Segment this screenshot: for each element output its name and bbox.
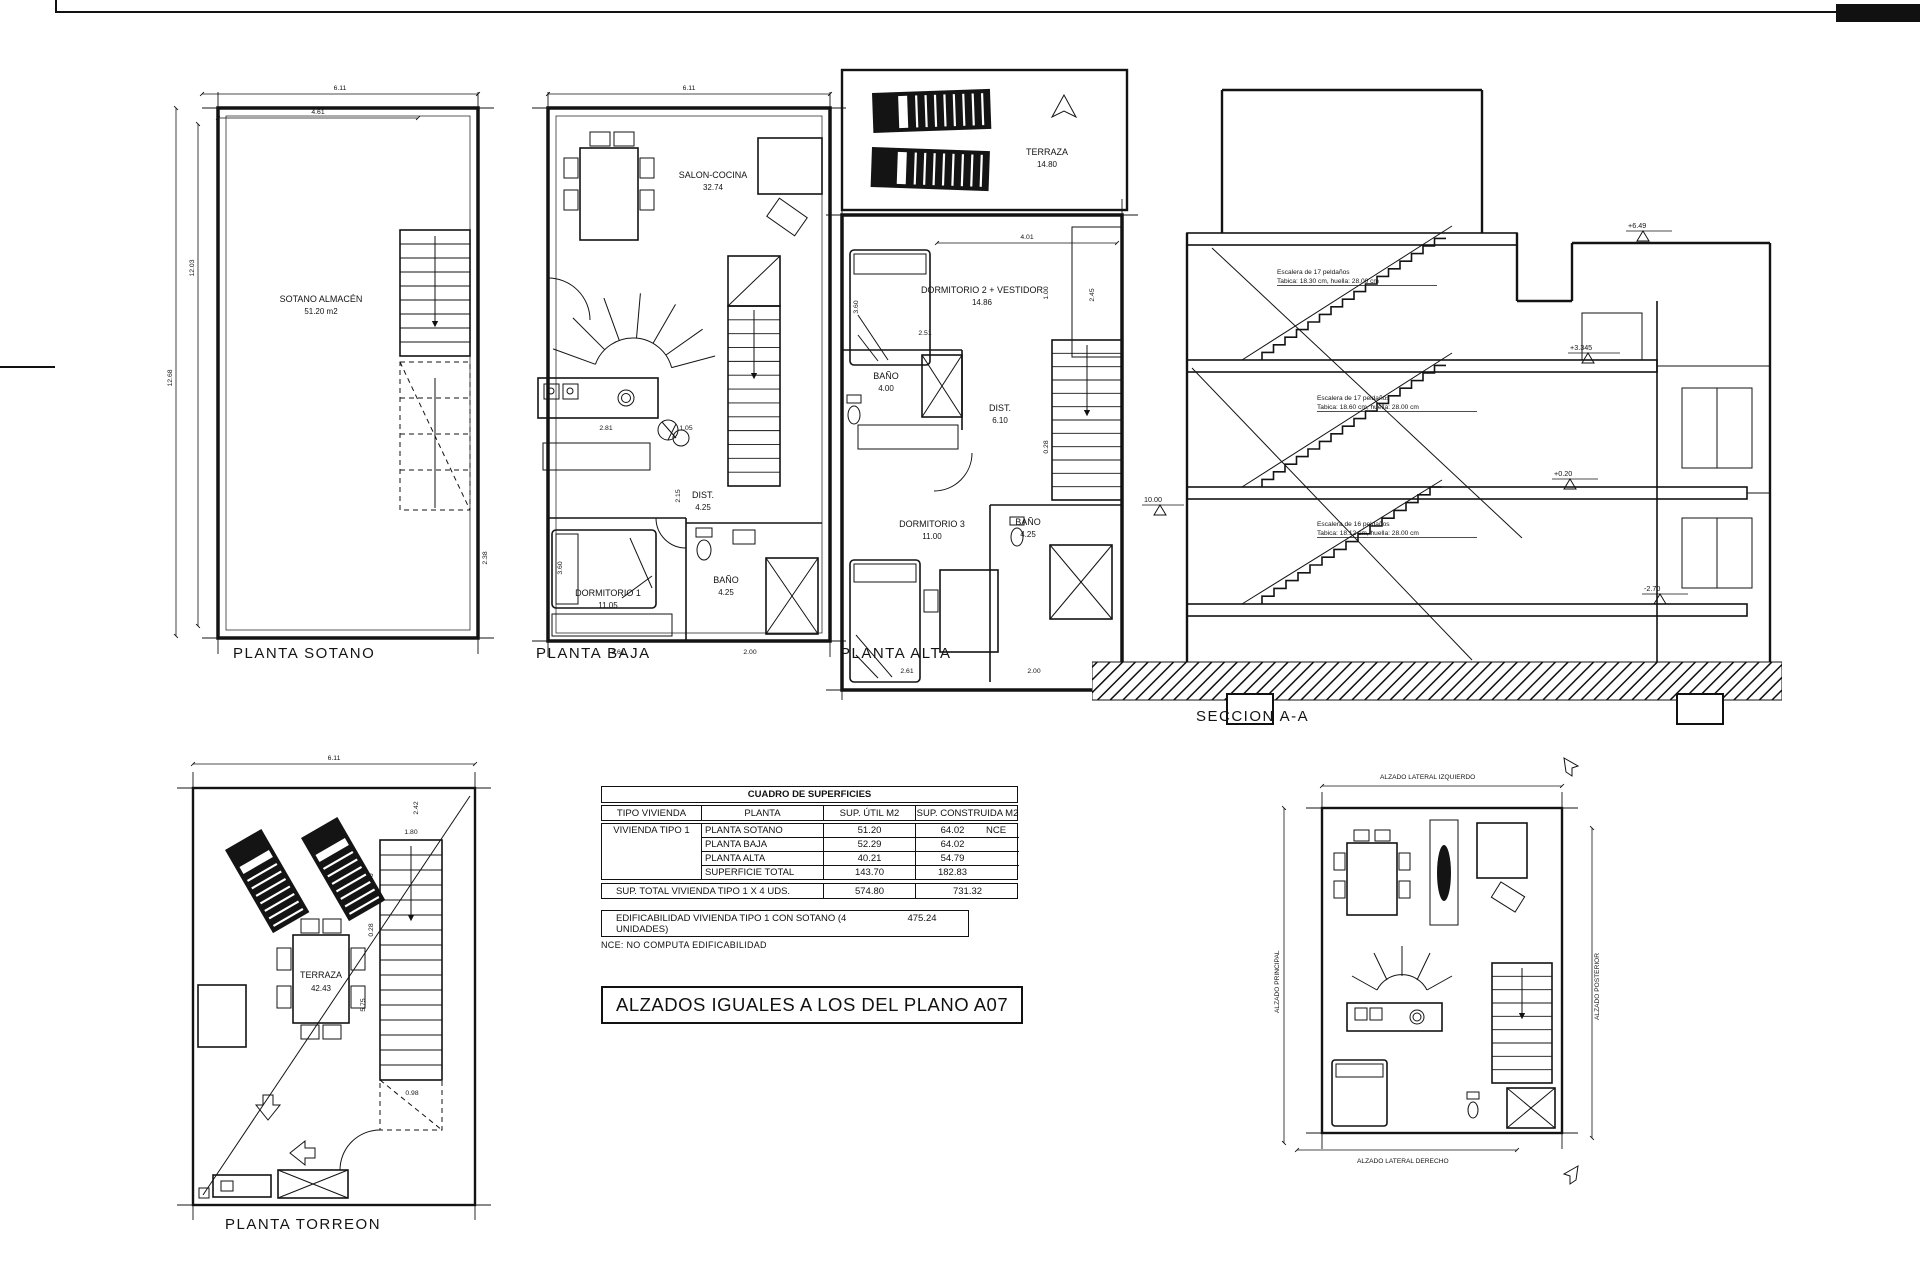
direction-arrow-icon xyxy=(290,1141,315,1165)
svg-text:Escalera de 17 peldaños: Escalera de 17 peldaños xyxy=(1277,269,1350,276)
svg-text:Escalera de 16 peldaños: Escalera de 16 peldaños xyxy=(1317,521,1390,528)
shower xyxy=(922,355,962,417)
sheet-corner-block xyxy=(1836,4,1920,22)
room-label: DORMITORIO 1 xyxy=(575,588,641,598)
dim-label: 12.68 xyxy=(167,369,174,386)
sofa xyxy=(758,138,822,236)
table-row-util: 40.21 xyxy=(824,852,916,866)
svg-text:+0.20: +0.20 xyxy=(1554,469,1572,478)
slab-alta xyxy=(1187,360,1657,372)
bed xyxy=(1332,1060,1387,1126)
table-row-cons: 54.79 xyxy=(916,852,1019,866)
col-header-tipo: TIPO VIVIENDA xyxy=(602,806,702,820)
room-area: 14.80 xyxy=(1037,160,1058,169)
level-marker: +0.20 xyxy=(1552,469,1598,489)
dim-label: 1.00 xyxy=(1043,286,1050,299)
plan-title-seccion: SECCION A-A xyxy=(1196,708,1309,725)
plant-stand xyxy=(1430,820,1458,925)
table-row-planta: PLANTA BAJA xyxy=(702,838,824,852)
dim-label: 2.00 xyxy=(743,649,756,656)
room-area: 11.00 xyxy=(922,532,942,541)
bench xyxy=(213,1175,271,1197)
slab-baja xyxy=(1187,487,1747,499)
room-area: 4.25 xyxy=(718,588,734,597)
sink xyxy=(221,1181,233,1191)
bed xyxy=(850,560,920,682)
sheet-border-top xyxy=(55,11,1920,13)
total-construida: 731.32 xyxy=(916,884,1019,898)
dim-label: 12.03 xyxy=(189,259,196,276)
stair-note: Escalera de 16 peldaños Tabica: 18.12 cm… xyxy=(1317,521,1477,538)
stair-note: Escalera de 17 peldaños Tabica: 18.60 cm… xyxy=(1317,395,1477,412)
plan-title-torreon: PLANTA TORREON xyxy=(225,1216,381,1233)
plan-title-sotano: PLANTA SOTANO xyxy=(233,645,375,662)
svg-text:Tabica: 18.30 cm, huella: 28.0: Tabica: 18.30 cm, huella: 28.00 cm xyxy=(1277,278,1379,285)
dim-label: 4.01 xyxy=(1020,234,1033,241)
room-label: TERRAZA xyxy=(300,970,342,980)
bed xyxy=(850,250,930,365)
stair-flight-top xyxy=(1242,226,1452,360)
room-area: 4.25 xyxy=(1020,530,1036,539)
dim-label: 2.61 xyxy=(900,668,913,675)
sheet-border-tick xyxy=(55,0,57,13)
elevation-label-right: ALZADO POSTERIOR xyxy=(1594,953,1601,1020)
stair xyxy=(1492,963,1552,1083)
dim-label: 1.80 xyxy=(404,829,417,836)
section-drawing: Escalera de 17 peldaños Tabica: 18.30 cm… xyxy=(1092,68,1782,728)
svg-text:10.00: 10.00 xyxy=(1144,495,1162,504)
dim-label: 1.00 xyxy=(368,873,375,886)
dim-label: 6.11 xyxy=(328,755,341,762)
door-arc xyxy=(934,453,972,491)
room-label: DORMITORIO 2 + VESTIDOR xyxy=(921,285,1044,295)
room-area: 4.00 xyxy=(878,384,894,393)
svg-text:+6.49: +6.49 xyxy=(1628,221,1646,230)
sun-lounger xyxy=(871,147,990,191)
kitchen-island xyxy=(1347,1003,1442,1031)
room-area: 4.25 xyxy=(695,503,711,512)
cell-tipo-vivienda: VIVIENDA TIPO 1 xyxy=(602,824,702,879)
surface-table-title: CUADRO DE SUPERFICIES xyxy=(601,786,1018,803)
surface-table-header: TIPO VIVIENDA PLANTA SUP. ÚTIL M2 SUP. C… xyxy=(601,805,1018,821)
surface-table-body: VIVIENDA TIPO 1 PLANTA SOTANO 51.20 64.0… xyxy=(601,823,1018,880)
stair-upper xyxy=(400,230,470,356)
skylight xyxy=(278,1170,348,1198)
dim-label: 0.98 xyxy=(405,1090,418,1097)
dim-label: 5.75 xyxy=(360,998,367,1011)
direction-arrow-icon xyxy=(1052,95,1076,117)
dim-label: 2.38 xyxy=(482,551,489,564)
dim-label: 2.81 xyxy=(599,425,612,432)
desk xyxy=(924,570,998,652)
nce-note: NCE: NO COMPUTA EDIFICABILIDAD xyxy=(601,940,767,950)
toilet xyxy=(1467,1092,1479,1118)
room-area: 32.74 xyxy=(703,183,724,192)
svg-text:-2.70: -2.70 xyxy=(1644,584,1660,593)
plan-baja-drawing: 6.11 SALON-COCINA 32.74 xyxy=(518,78,848,668)
total-util: 574.80 xyxy=(824,884,916,898)
planter-box xyxy=(198,985,246,1047)
plant xyxy=(658,420,689,446)
svg-text:Escalera de 17 peldaños: Escalera de 17 peldaños xyxy=(1317,395,1390,402)
surface-table: CUADRO DE SUPERFICIES TIPO VIVIENDA PLAN… xyxy=(601,786,1018,937)
room-label: DIST. xyxy=(989,403,1011,413)
surface-table-total-row: SUP. TOTAL VIVIENDA TIPO 1 X 4 UDS. 574.… xyxy=(601,883,1018,899)
dim-label: 2.51 xyxy=(918,330,931,337)
door-arc xyxy=(340,1130,380,1170)
sun-lounger xyxy=(872,89,991,133)
elevation-label-bottom: ALZADO LATERAL DERECHO xyxy=(1357,1158,1449,1165)
section-diagonal xyxy=(1212,248,1522,538)
toilet xyxy=(847,395,861,424)
table-row-util: 51.20 xyxy=(824,824,916,838)
edificabilidad-value: 475.24 xyxy=(876,911,968,936)
stair-flight-mid xyxy=(1242,353,1452,487)
table-row-util: 143.70 xyxy=(824,866,916,879)
room-label: BAÑO xyxy=(713,575,739,585)
room-label: SALON-COCINA xyxy=(679,170,748,180)
dining-table xyxy=(564,132,654,240)
shower xyxy=(766,558,818,634)
wall-outline xyxy=(218,108,478,638)
height-dim: 10.00 xyxy=(1142,495,1184,515)
nce-flag: NCE xyxy=(986,825,1016,836)
table-row-planta: PLANTA ALTA xyxy=(702,852,824,866)
door-arc xyxy=(656,518,686,548)
kitchen-fan xyxy=(1352,946,1452,990)
room-label: SOTANO ALMACÉN xyxy=(280,294,363,304)
door-arc xyxy=(548,278,590,320)
stair xyxy=(380,840,442,1130)
level-marker: -2.70 xyxy=(1642,584,1688,604)
room-label: TERRAZA xyxy=(1026,147,1068,157)
dim-label: 1.05 xyxy=(679,425,692,432)
col-header-construida: SUP. CONSTRUIDA M2 xyxy=(916,806,1019,820)
toilet xyxy=(696,528,712,560)
dim-label: 2.15 xyxy=(675,489,682,502)
col-header-planta: PLANTA xyxy=(702,806,824,820)
room-label: BAÑO xyxy=(1015,517,1041,527)
room-label: BAÑO xyxy=(873,371,899,381)
dim-label: 6.11 xyxy=(334,85,347,92)
table-row-cons: 182.83 xyxy=(916,866,1019,879)
room-area: 11.05 xyxy=(598,601,618,610)
section-cut-icon xyxy=(1564,1166,1578,1184)
stair xyxy=(728,256,780,486)
edificabilidad-label: EDIFICABILIDAD VIVIENDA TIPO 1 CON SOTAN… xyxy=(602,911,876,936)
drawing-sheet: 6.11 4.61 12.68 12.03 2.38 SOTANO ALMACÉ… xyxy=(0,0,1920,1280)
elevation-label-top: ALZADO LATERAL IZQUIERDO xyxy=(1380,774,1475,781)
room-area: 6.10 xyxy=(992,416,1008,425)
cabinet-hatched xyxy=(543,443,650,470)
table-row-util: 52.29 xyxy=(824,838,916,852)
slab-torreon xyxy=(1187,233,1517,245)
dim-label: 3.60 xyxy=(853,300,860,313)
edificabilidad-row: EDIFICABILIDAD VIVIENDA TIPO 1 CON SOTAN… xyxy=(601,910,969,937)
stair-lower-dashed xyxy=(400,362,470,510)
kitchen-fan xyxy=(553,293,715,367)
dim-label: 0.28 xyxy=(1043,440,1050,453)
room-label: DIST. xyxy=(692,490,714,500)
plan-torreon-drawing: 6.11 TERRAZA 42.43 xyxy=(163,750,493,1220)
sun-lounger xyxy=(301,817,385,921)
plan-title-baja: PLANTA BAJA xyxy=(536,645,651,662)
wardrobe-hatched xyxy=(858,425,958,449)
section-cut-icon xyxy=(1564,758,1578,776)
col-header-util: SUP. ÚTIL M2 xyxy=(824,806,916,820)
dim-label: 0.28 xyxy=(368,923,375,936)
room-label: DORMITORIO 3 xyxy=(899,519,965,529)
shower xyxy=(1507,1088,1555,1128)
cons-value: 182.83 xyxy=(919,867,986,878)
dim-label: 2.42 xyxy=(413,801,420,814)
cons-value: 64.02 xyxy=(919,839,986,850)
sheet-border-left-mark xyxy=(0,366,55,368)
level-marker: +6.49 xyxy=(1626,221,1672,241)
wall-outline xyxy=(548,108,830,641)
dim-label: 4.61 xyxy=(311,109,324,116)
cons-value: 54.79 xyxy=(919,853,986,864)
sun-lounger xyxy=(225,829,309,933)
dim-label: 3.60 xyxy=(557,561,564,574)
sofa xyxy=(1477,823,1527,912)
total-label: SUP. TOTAL VIVIENDA TIPO 1 X 4 UDS. xyxy=(602,884,824,898)
plan-title-alta: PLANTA ALTA xyxy=(840,645,952,662)
cons-value: 64.02 xyxy=(919,825,986,836)
slab-sotano xyxy=(1187,604,1747,616)
foundation-pad xyxy=(1677,694,1723,724)
dim-label: 6.11 xyxy=(683,85,696,92)
table-row-planta: SUPERFICIE TOTAL xyxy=(702,866,824,879)
svg-text:Tabica: 18.60 cm, huella: 28.0: Tabica: 18.60 cm, huella: 28.00 cm xyxy=(1317,404,1419,411)
table-row-planta: PLANTA SOTANO xyxy=(702,824,824,838)
plan-sotano-drawing: 6.11 4.61 12.68 12.03 2.38 SOTANO ALMACÉ… xyxy=(166,78,496,668)
table-row-cons: 64.02 xyxy=(916,838,1019,852)
alzados-note-box: ALZADOS IGUALES A LOS DEL PLANO A07 xyxy=(601,986,1023,1024)
elevation-label-left: ALZADO PRINCIPAL xyxy=(1274,950,1281,1013)
dining-table xyxy=(1334,830,1410,915)
room-area: 51.20 m2 xyxy=(304,307,338,316)
table-row-cons: 64.02NCE xyxy=(916,824,1019,838)
svg-text:+3.345: +3.345 xyxy=(1570,343,1592,352)
sink xyxy=(733,530,755,544)
room-area: 14.86 xyxy=(972,298,993,307)
svg-text:Tabica: 18.12 cm, huella: 28.0: Tabica: 18.12 cm, huella: 28.00 cm xyxy=(1317,530,1419,537)
room-area: 42.43 xyxy=(311,984,332,993)
dim-label: 2.00 xyxy=(1027,668,1040,675)
stair-note: Escalera de 17 peldaños Tabica: 18.30 cm… xyxy=(1277,269,1437,286)
elevation-key-plan: ALZADO LATERAL IZQUIERDO ALZADO LATERAL … xyxy=(1262,748,1612,1188)
